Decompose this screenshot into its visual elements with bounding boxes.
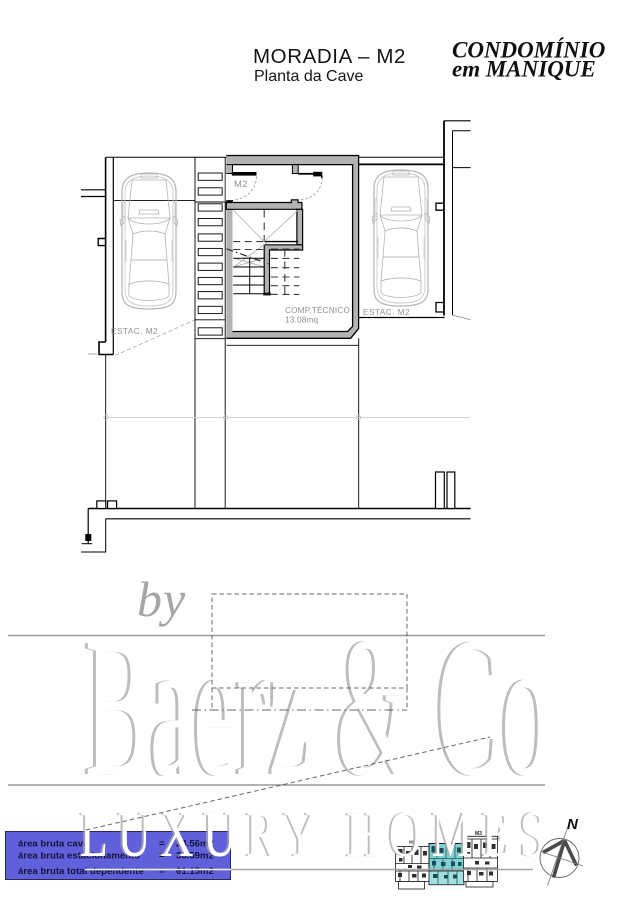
svg-text:COMP.TÉCNICO: COMP.TÉCNICO	[285, 305, 350, 315]
svg-text:LUXURY HOMES: LUXURY HOMES	[80, 798, 555, 871]
svg-text:ESTAC. M2: ESTAC. M2	[363, 308, 410, 317]
svg-text:M2: M2	[234, 179, 248, 190]
svg-text:N: N	[567, 816, 579, 833]
svg-text:ESTAC. M2: ESTAC. M2	[111, 327, 158, 336]
svg-text:13.08mq: 13.08mq	[285, 316, 319, 325]
svg-text:em MANIQUE: em MANIQUE	[452, 57, 596, 82]
svg-text:Planta da Cave: Planta da Cave	[254, 68, 364, 85]
svg-text:MORADIA – M2: MORADIA – M2	[253, 45, 406, 68]
